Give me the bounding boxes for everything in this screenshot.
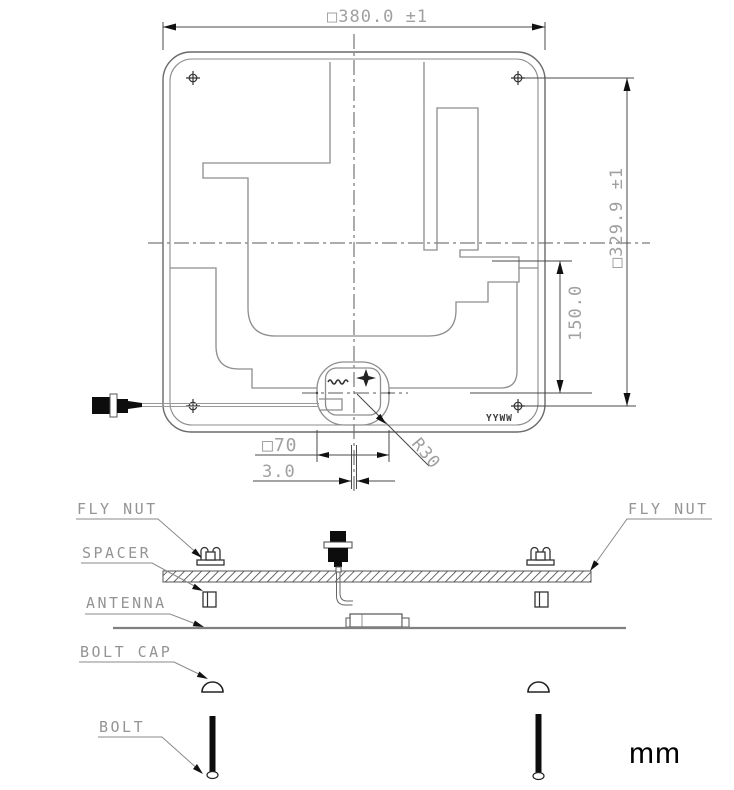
trace-top-right-block	[424, 62, 519, 268]
dim-feed-offset: 150.0	[470, 261, 592, 393]
trace-inner-u	[248, 252, 538, 336]
spacer-text: SPACER	[82, 544, 151, 562]
label-fly-nut-right: FLY NUT	[590, 500, 712, 571]
label-bolt: BOLT	[98, 718, 203, 774]
spacer-left-part	[203, 592, 216, 607]
connector-cap	[330, 531, 346, 542]
bolt-left-part	[207, 716, 218, 779]
feed-tab	[319, 399, 342, 410]
bolt-cap-right-part	[528, 682, 549, 692]
mounting-hole-bottom-right	[511, 399, 525, 413]
exploded-view: FLY NUT FLY NUT SPACER ANTENNA BOLT CAP …	[76, 500, 712, 780]
connector-pin	[128, 401, 142, 409]
date-code-marking: YYWW	[486, 413, 513, 424]
feed-inner-outline	[326, 368, 381, 415]
mounting-hole-top-right	[511, 71, 525, 85]
feed-box-right-post	[402, 618, 409, 627]
feed-box	[350, 614, 402, 627]
connector-body-side	[328, 548, 348, 562]
top-view: YYWW □380.0 ±1 □329.9 ±1 150.0	[92, 7, 650, 493]
dim-feed-square-label: □70	[262, 435, 298, 456]
label-spacer: SPACER	[81, 544, 203, 591]
dim-height: □329.9 ±1	[525, 78, 636, 406]
dim-height-label: □329.9 ±1	[607, 167, 627, 268]
connector-flange	[110, 394, 117, 417]
fly-nut-right-part	[527, 548, 554, 566]
dim-feed-gap-label: 3.0	[262, 462, 296, 482]
dim-feed-square: □70	[255, 430, 389, 462]
dim-width-label: □380.0 ±1	[327, 7, 428, 27]
antenna-drawing-canvas: YYWW □380.0 ±1 □329.9 ±1 150.0	[0, 0, 734, 790]
units-label: mm	[629, 737, 681, 770]
label-antenna: ANTENNA	[85, 594, 204, 627]
dim-corner-radius-label: R30	[407, 434, 444, 473]
fly-nut-left-text: FLY NUT	[77, 500, 158, 518]
dim-corner-radius: R30	[357, 394, 444, 473]
connector-neck	[334, 562, 342, 567]
feed-center-dot-left	[316, 392, 318, 394]
trace-outer-u-right	[389, 282, 517, 388]
bolt-cap-text: BOLT CAP	[80, 643, 172, 661]
bolt-right-part	[533, 714, 544, 780]
trace-outer-u-left	[171, 268, 318, 388]
coax-cable	[142, 404, 319, 407]
coax-connector-top-view	[92, 394, 319, 417]
connector-body	[92, 397, 110, 414]
spacer-right-part	[535, 592, 548, 607]
technical-drawing-page: YYWW □380.0 ±1 □329.9 ±1 150.0	[0, 0, 734, 790]
connector-flange-side	[324, 542, 352, 548]
fly-nut-left-part	[197, 548, 224, 566]
feed-logo-star-icon	[356, 369, 376, 387]
feed-logo-mark	[328, 380, 348, 384]
feed-box-left-post	[346, 618, 350, 627]
fly-nut-right-text: FLY NUT	[628, 500, 709, 518]
feed-center-dot-right	[388, 392, 390, 394]
mounting-hole-top-left	[186, 71, 200, 85]
bolt-cap-left-part	[202, 682, 223, 692]
connector-tip	[336, 567, 341, 572]
connector-nut	[117, 399, 128, 413]
label-bolt-cap: BOLT CAP	[79, 643, 208, 679]
dim-feed-offset-label: 150.0	[566, 285, 586, 341]
bolt-text: BOLT	[99, 718, 145, 736]
antenna-text: ANTENNA	[86, 594, 167, 612]
mounting-surface-hatched	[163, 571, 591, 582]
trace-top-left-block	[203, 62, 330, 252]
